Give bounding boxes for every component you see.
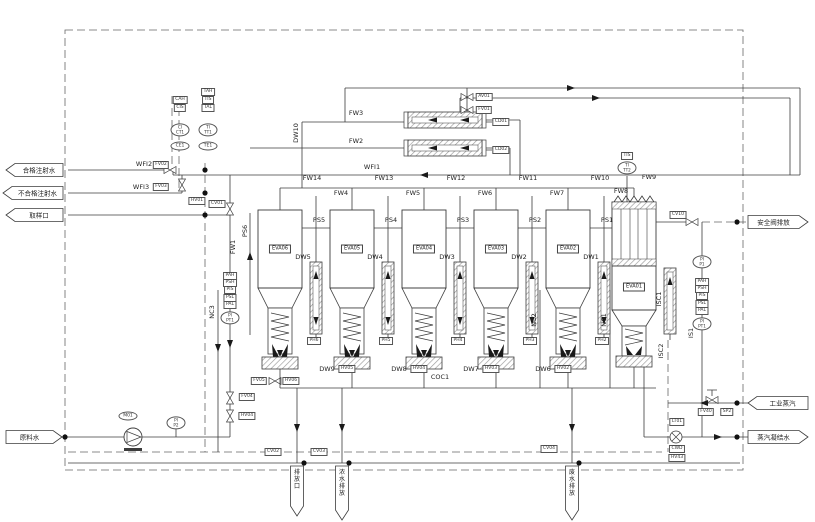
svg-text:合格注射水: 合格注射水 (23, 165, 56, 174)
label-dw2: DW2 (511, 253, 527, 261)
label-cv04: CV04 (541, 445, 558, 453)
label-fw4: FW4 (334, 189, 348, 197)
preheater-tag-ph4: PH4 (451, 337, 465, 345)
label-ps6: PS6 (241, 225, 249, 237)
steam-trap (670, 431, 682, 443)
label-cis: CIS (174, 104, 186, 112)
industrial-steam-in: 工业蒸汽 (748, 397, 808, 410)
label-sp2: SP2 (720, 408, 733, 416)
drain-1: 排放口 (291, 466, 304, 516)
label-is1: IS1 (687, 328, 695, 338)
label-wfi2: WFI2 (136, 160, 152, 168)
sample-port-out: 取样口 (6, 209, 63, 222)
preheater-tag-ph6: PH6 (307, 337, 321, 345)
label-fw12: FW12 (447, 174, 465, 182)
label-nc3: NC3 (208, 305, 216, 319)
label-fw2: FW2 (349, 137, 363, 145)
vessel-tag-eva04: EVA04 (413, 245, 435, 254)
label-dw6: DW6 (535, 365, 551, 373)
label-cd01: CD01 (492, 118, 509, 126)
label-cd02: CD02 (492, 146, 509, 154)
vessel-tag-eva03: EVA03 (485, 245, 507, 254)
label-hv03: HV03 (482, 365, 499, 373)
label-cv01: CV01 (209, 200, 226, 208)
preheater-tag-ph5: PH5 (379, 337, 393, 345)
label-fv03: FV03 (153, 183, 169, 191)
vessel-tag-eva06: EVA06 (269, 245, 291, 254)
svg-text:浓水排放: 浓水排放 (339, 468, 345, 497)
label-tah: TAH (201, 88, 215, 96)
label-fv04: FV04 (239, 393, 255, 401)
label-fw13: FW13 (375, 174, 393, 182)
condenser-2 (404, 140, 486, 156)
label-te1: TE1 (199, 142, 218, 151)
label-ce1: CE1 (171, 142, 190, 151)
label-fw9: FW9 (642, 173, 656, 181)
label-fw1: FW1 (229, 240, 237, 254)
label-dw10: DW10 (292, 123, 300, 143)
svg-text:原料水: 原料水 (20, 432, 40, 441)
steam-condensate-out: 蒸汽凝结水 (748, 431, 808, 444)
label-hv06: HV06 (282, 377, 299, 385)
label-hv04: HV04 (238, 412, 255, 420)
label-hv04: HV04 (410, 365, 427, 373)
feed-water-in: 原料水 (6, 431, 62, 444)
label-cwd: CWD (669, 445, 685, 453)
condenser-1 (404, 112, 486, 128)
label-dw5: DW5 (295, 253, 311, 261)
label-nc2: NC2 (530, 313, 538, 327)
label-tal: TAL (202, 104, 215, 112)
label-fw8: FW8 (614, 187, 628, 195)
label-av01: AV01 (476, 93, 493, 101)
label-cv02: CV02 (265, 448, 282, 456)
label-wfi3: WFI3 (133, 183, 149, 191)
label-cah: CAH (173, 96, 188, 104)
feed-line-pressure-stack-pal-4: PAL (223, 301, 236, 309)
label-dw3: DW3 (439, 253, 455, 261)
label-ps5: PS5 (313, 216, 325, 224)
label-dw8: DW8 (391, 365, 407, 373)
qualified-wfi-out: 合格注射水 (6, 164, 63, 177)
drain-3: 废水排放 (566, 466, 579, 520)
label-fv40: FV40 (698, 408, 714, 416)
label-fw11: FW11 (519, 174, 537, 182)
svg-text:安全阀排放: 安全阀排放 (757, 217, 790, 226)
label-dw1: DW1 (583, 253, 599, 261)
svg-text:排放口: 排放口 (294, 468, 300, 490)
label-lt01: LT01 (669, 418, 684, 426)
svg-text:蒸汽凝结水: 蒸汽凝结水 (757, 432, 790, 441)
label-ps4: PS4 (385, 216, 397, 224)
label-dw4: DW4 (367, 253, 383, 261)
label-fw5: FW5 (406, 189, 420, 197)
label-nc1: NC1 (600, 313, 608, 327)
label-ps3: PS3 (457, 216, 469, 224)
label-isc1: ISC1 (655, 292, 663, 307)
label-fv01: FV01 (476, 106, 492, 114)
feed-pump (124, 428, 142, 451)
svg-text:工业蒸汽: 工业蒸汽 (770, 398, 797, 407)
label-tis: TIS (202, 96, 214, 104)
svg-text:废水排放: 废水排放 (569, 468, 575, 497)
instrument-tag-tis: TIS (621, 152, 633, 160)
svg-text:取样口: 取样口 (29, 210, 49, 219)
safety-valve-vent: 安全阀排放 (748, 216, 808, 229)
label-hv43: HV43 (668, 454, 685, 462)
label-hv02: HV02 (554, 365, 571, 373)
svg-text:不合格注射水: 不合格注射水 (18, 188, 58, 197)
label-m01: M01 (119, 412, 138, 421)
label-fw14: FW14 (303, 174, 321, 182)
label-fw3: FW3 (349, 109, 363, 117)
vessel-tag-eva05: EVA05 (341, 245, 363, 254)
label-fw7: FW7 (550, 189, 564, 197)
label-coc1: COC1 (431, 373, 449, 381)
label-wfi1: WFI1 (364, 163, 380, 171)
label-hv05: HV05 (338, 365, 355, 373)
label-fv02: FV02 (153, 161, 169, 169)
label-hv01: HV01 (188, 197, 205, 205)
label-fw10: FW10 (591, 174, 609, 182)
preheater-tag-ph3: PH3 (523, 337, 537, 345)
drain-2: 浓水排放 (336, 466, 349, 520)
label-dw9: DW9 (319, 365, 335, 373)
vessel-tag-eva02: EVA02 (557, 245, 579, 254)
pid-diagram-canvas: 合格注射水不合格注射水取样口原料水安全阀排放工业蒸汽蒸汽凝结水排放口浓水排放废水… (0, 0, 815, 522)
label-cv03: CV03 (311, 448, 328, 456)
label-dw7: DW7 (463, 365, 479, 373)
unqualified-wfi-out: 不合格注射水 (3, 187, 63, 200)
vessel-tag-eva01: EVA01 (623, 283, 645, 292)
label-cv10: CV10 (670, 211, 687, 219)
preheater-tag-ph2: PH2 (595, 337, 609, 345)
label-ps2: PS2 (529, 216, 541, 224)
label-isc2: ISC2 (657, 344, 665, 359)
label-fw6: FW6 (478, 189, 492, 197)
label-ps1: PS1 (601, 216, 613, 224)
label-fv05: FV05 (251, 377, 267, 385)
steam-pressure-stack-pal-4: PAL (695, 307, 708, 315)
